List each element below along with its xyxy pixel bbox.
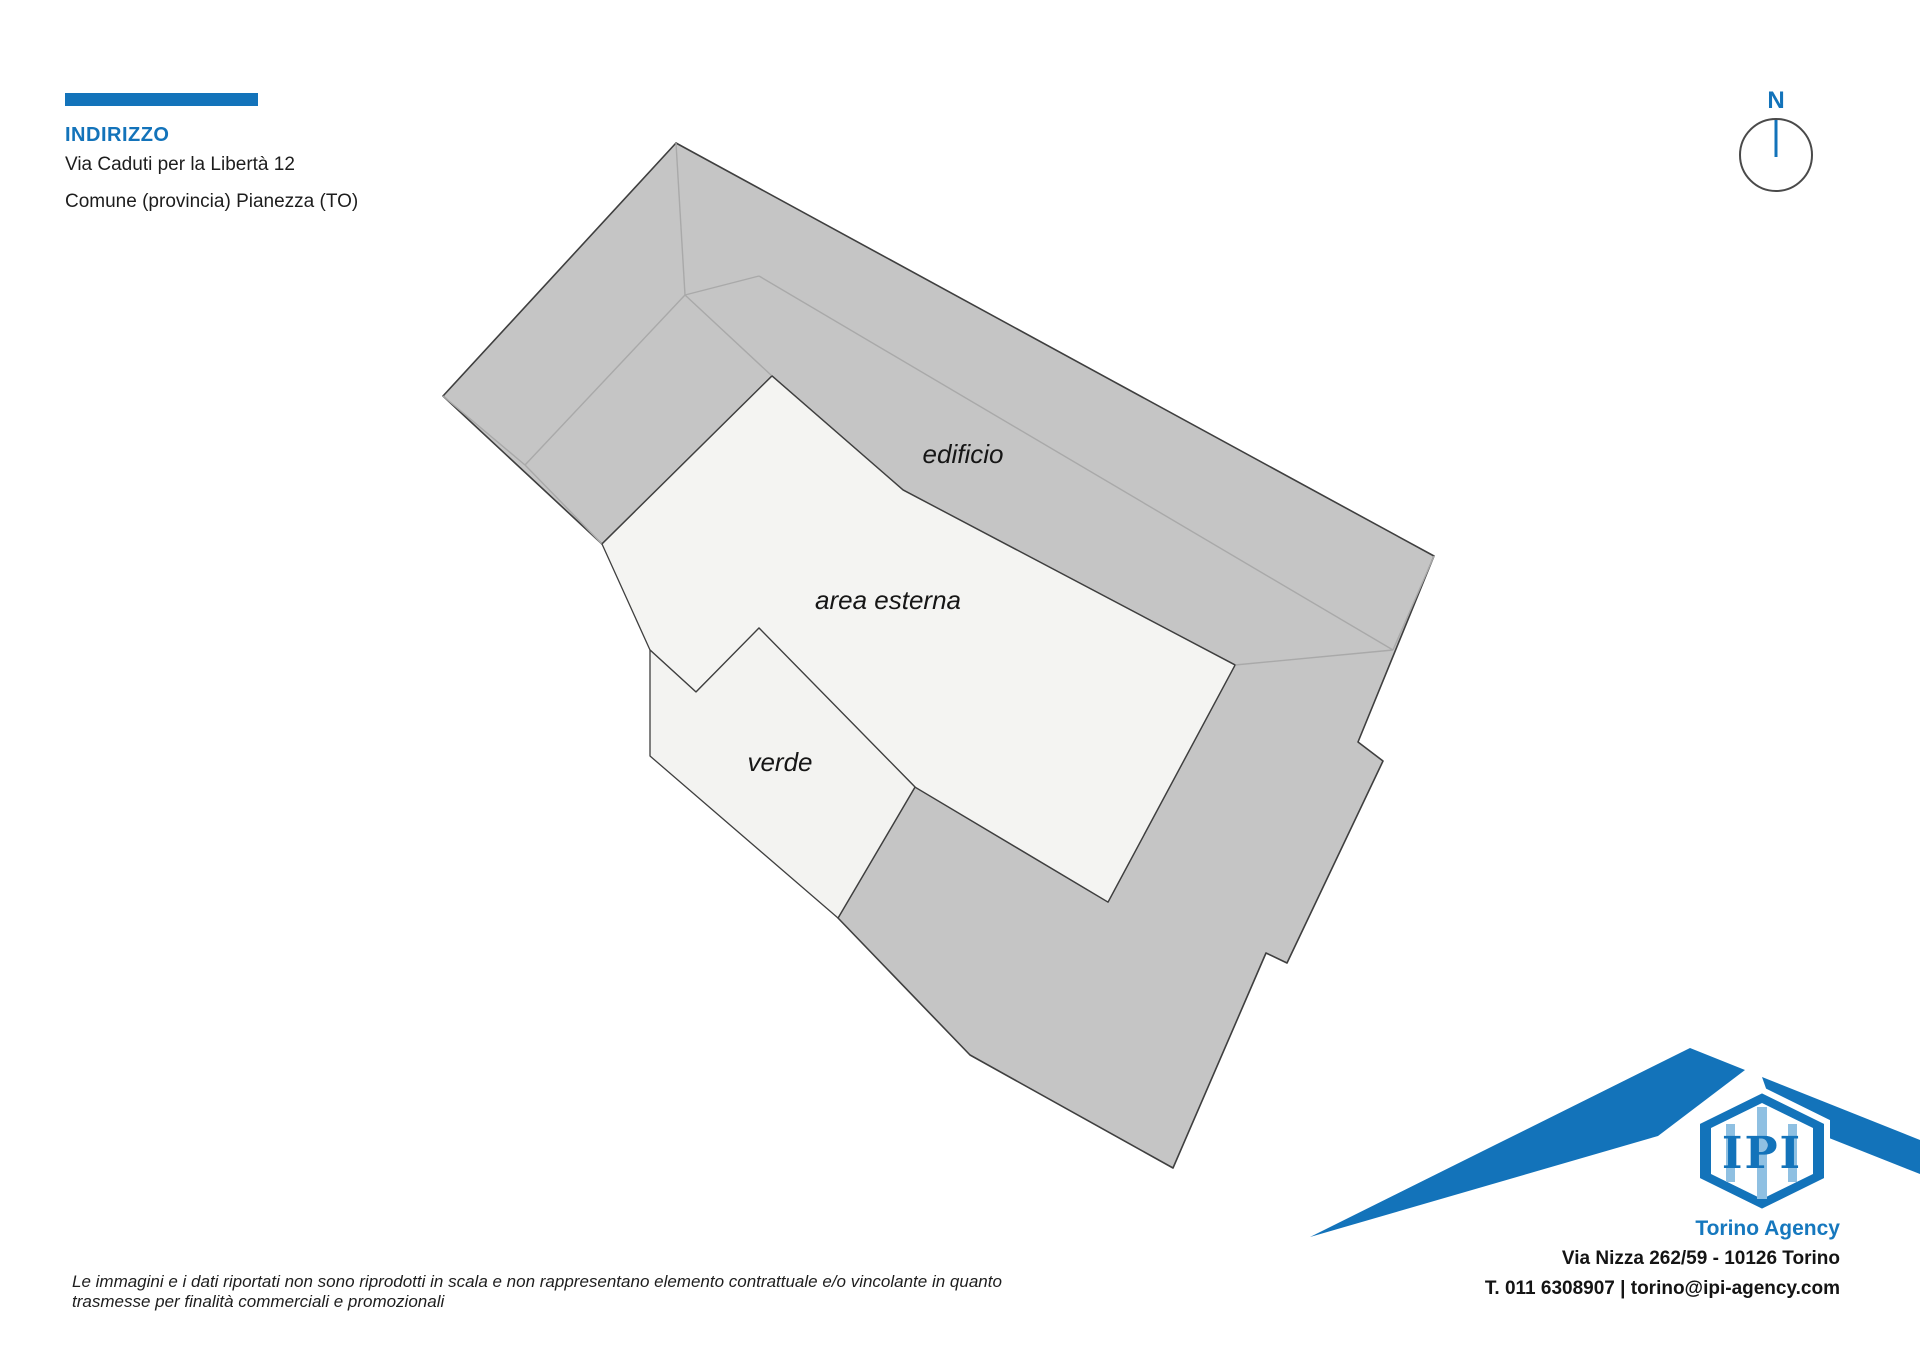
page: INDIRIZZO Via Caduti per la Libertà 12 C… [0,0,1920,1357]
disclaimer-text: Le immagini e i dati riportati non sono … [72,1272,1072,1312]
logo-letters: IPI [1722,1128,1802,1179]
agency-logo: IPI [1310,1048,1920,1237]
outdoor-area-label: area esterna [815,585,961,615]
north-label: N [1767,87,1784,114]
agency-name: Torino Agency [1485,1214,1840,1244]
agency-contact-block: Torino Agency Via Nizza 262/59 - 10126 T… [1485,1214,1840,1304]
green-area-label: verde [747,747,812,777]
logo-swoosh-main [1310,1048,1745,1237]
agency-address: Via Nizza 262/59 - 10126 Torino [1485,1244,1840,1274]
north-compass-icon: N [1740,87,1812,191]
site-plan: edificio area esterna verde N IPI [0,0,1920,1357]
agency-contact: T. 011 6308907 | torino@ipi-agency.com [1485,1274,1840,1304]
building-label: edificio [923,439,1004,469]
